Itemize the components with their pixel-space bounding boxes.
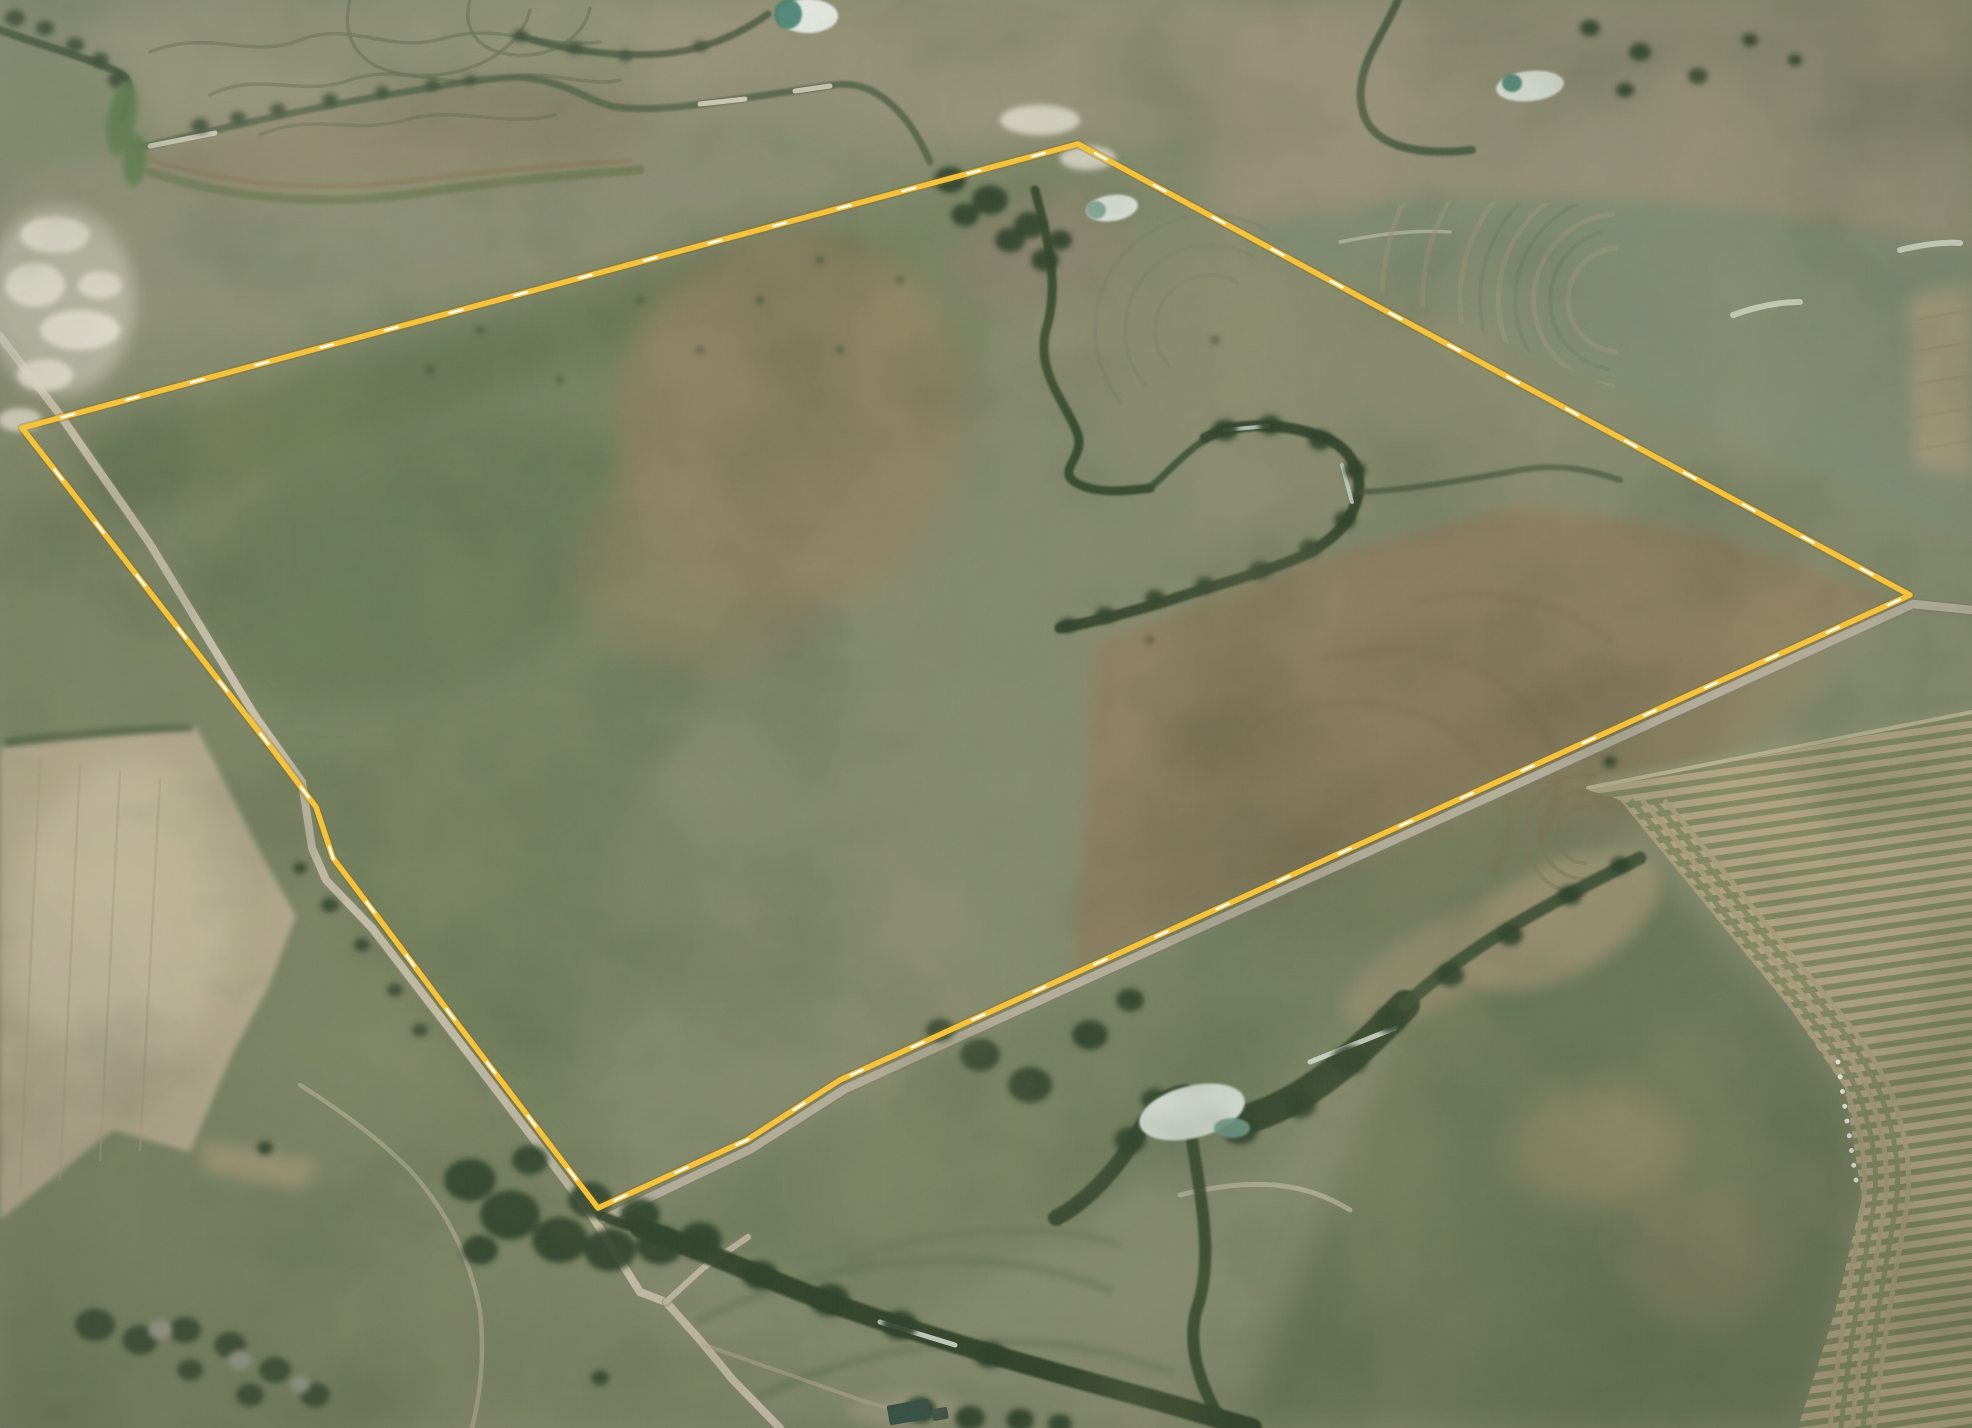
satellite-map-viewport[interactable] [0,0,1972,1428]
vignette [0,0,1972,1428]
aerial-imagery-canvas[interactable] [0,0,1972,1428]
photo-effects-layer [0,0,1972,1428]
